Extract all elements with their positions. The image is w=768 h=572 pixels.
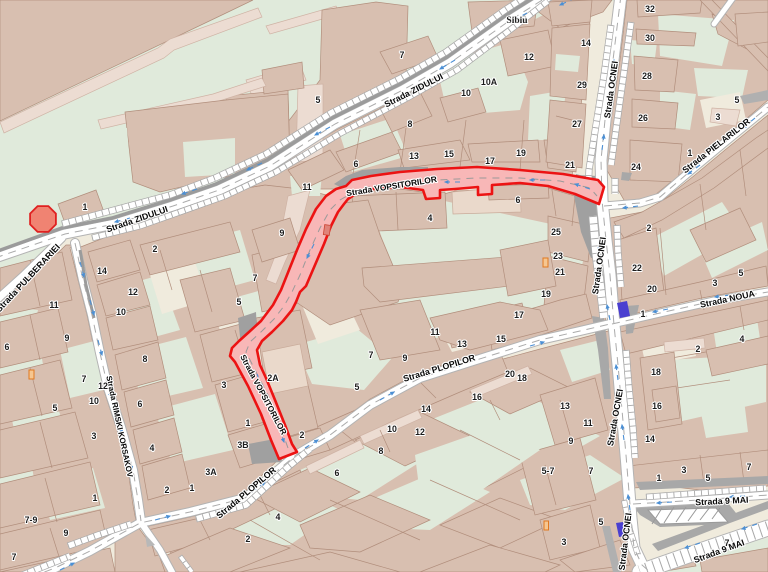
svg-text:17: 17: [514, 310, 524, 320]
svg-text:15: 15: [496, 334, 506, 344]
svg-text:7: 7: [589, 466, 594, 476]
svg-text:20: 20: [647, 284, 657, 294]
svg-text:21: 21: [555, 267, 565, 277]
svg-text:1: 1: [190, 483, 195, 493]
svg-text:5: 5: [735, 95, 740, 105]
svg-text:3: 3: [713, 278, 718, 288]
svg-text:14: 14: [97, 266, 107, 276]
svg-text:13: 13: [409, 151, 419, 161]
svg-text:Sibiu: Sibiu: [506, 16, 528, 26]
svg-text:29: 29: [577, 80, 587, 90]
svg-text:17: 17: [485, 156, 495, 166]
svg-text:7-9: 7-9: [25, 515, 38, 525]
svg-text:9: 9: [64, 528, 69, 538]
svg-text:4: 4: [428, 213, 433, 223]
svg-text:28: 28: [642, 71, 652, 81]
svg-text:1: 1: [657, 473, 662, 483]
svg-text:3: 3: [716, 112, 721, 122]
svg-text:16: 16: [472, 392, 482, 402]
svg-text:8: 8: [143, 354, 148, 364]
svg-text:11: 11: [49, 300, 58, 310]
svg-text:5: 5: [706, 473, 711, 483]
svg-text:25: 25: [551, 227, 561, 237]
svg-text:20: 20: [505, 369, 515, 379]
svg-text:8: 8: [379, 446, 384, 456]
svg-text:24: 24: [631, 162, 641, 172]
svg-text:7: 7: [253, 273, 258, 283]
svg-text:14: 14: [645, 434, 655, 444]
svg-text:10: 10: [89, 396, 99, 406]
svg-text:5-7: 5-7: [542, 466, 555, 476]
svg-text:2: 2: [153, 244, 158, 254]
svg-text:4: 4: [150, 443, 155, 453]
svg-text:2: 2: [300, 430, 305, 440]
svg-text:9: 9: [569, 436, 574, 446]
svg-text:6: 6: [354, 159, 359, 169]
svg-text:13: 13: [560, 401, 570, 411]
svg-text:18: 18: [517, 373, 527, 383]
svg-text:6: 6: [335, 468, 340, 478]
svg-text:8: 8: [408, 119, 413, 129]
svg-text:21: 21: [565, 160, 575, 170]
svg-text:9: 9: [280, 228, 285, 238]
svg-text:5: 5: [355, 382, 360, 392]
svg-text:5: 5: [599, 517, 604, 527]
svg-text:19: 19: [541, 289, 551, 299]
svg-text:10A: 10A: [481, 77, 498, 87]
svg-text:6: 6: [516, 195, 521, 205]
svg-text:3A: 3A: [205, 467, 217, 477]
svg-text:22: 22: [632, 263, 642, 273]
svg-text:6: 6: [138, 399, 143, 409]
svg-text:3: 3: [92, 431, 97, 441]
svg-text:1: 1: [688, 148, 693, 158]
svg-text:4: 4: [740, 334, 745, 344]
svg-text:2: 2: [165, 485, 170, 495]
svg-text:15: 15: [444, 149, 454, 159]
svg-text:19: 19: [516, 148, 526, 158]
svg-text:5: 5: [53, 403, 58, 413]
svg-text:14: 14: [421, 404, 431, 414]
svg-text:10: 10: [116, 307, 126, 317]
svg-text:1: 1: [641, 309, 646, 319]
svg-text:2: 2: [647, 223, 652, 233]
svg-text:5: 5: [237, 297, 242, 307]
svg-text:2A: 2A: [267, 373, 279, 383]
svg-text:7: 7: [400, 50, 405, 60]
svg-text:13: 13: [457, 339, 467, 349]
svg-text:1: 1: [246, 418, 251, 428]
svg-text:12: 12: [128, 287, 138, 297]
svg-text:11: 11: [430, 327, 439, 337]
svg-text:4: 4: [276, 512, 281, 522]
svg-text:3B: 3B: [237, 440, 248, 450]
svg-text:3: 3: [222, 380, 227, 390]
svg-text:7: 7: [369, 350, 374, 360]
svg-text:26: 26: [638, 113, 648, 123]
svg-text:18: 18: [651, 367, 661, 377]
svg-text:5: 5: [739, 268, 744, 278]
svg-text:9: 9: [403, 353, 408, 363]
svg-text:6: 6: [5, 342, 10, 352]
svg-text:3: 3: [562, 537, 567, 547]
svg-text:14: 14: [581, 38, 591, 48]
svg-text:9: 9: [65, 333, 70, 343]
svg-text:10: 10: [387, 424, 397, 434]
svg-text:16: 16: [652, 401, 662, 411]
svg-text:5: 5: [316, 95, 321, 105]
svg-text:32: 32: [645, 4, 655, 14]
svg-text:2: 2: [246, 534, 251, 544]
svg-text:7: 7: [747, 462, 752, 472]
svg-text:12: 12: [524, 52, 534, 62]
svg-text:11: 11: [302, 182, 311, 192]
svg-text:27: 27: [572, 119, 582, 129]
svg-text:1: 1: [83, 202, 88, 212]
svg-text:30: 30: [645, 33, 655, 43]
svg-text:7: 7: [725, 538, 730, 548]
svg-text:12: 12: [415, 427, 425, 437]
svg-text:1: 1: [93, 493, 98, 503]
svg-text:11: 11: [583, 418, 592, 428]
svg-text:23: 23: [553, 251, 563, 261]
svg-text:7: 7: [82, 374, 87, 384]
svg-text:2: 2: [696, 344, 701, 354]
svg-text:12: 12: [98, 381, 108, 391]
svg-text:3: 3: [682, 465, 687, 475]
svg-text:10: 10: [461, 88, 471, 98]
svg-text:7: 7: [12, 552, 17, 562]
